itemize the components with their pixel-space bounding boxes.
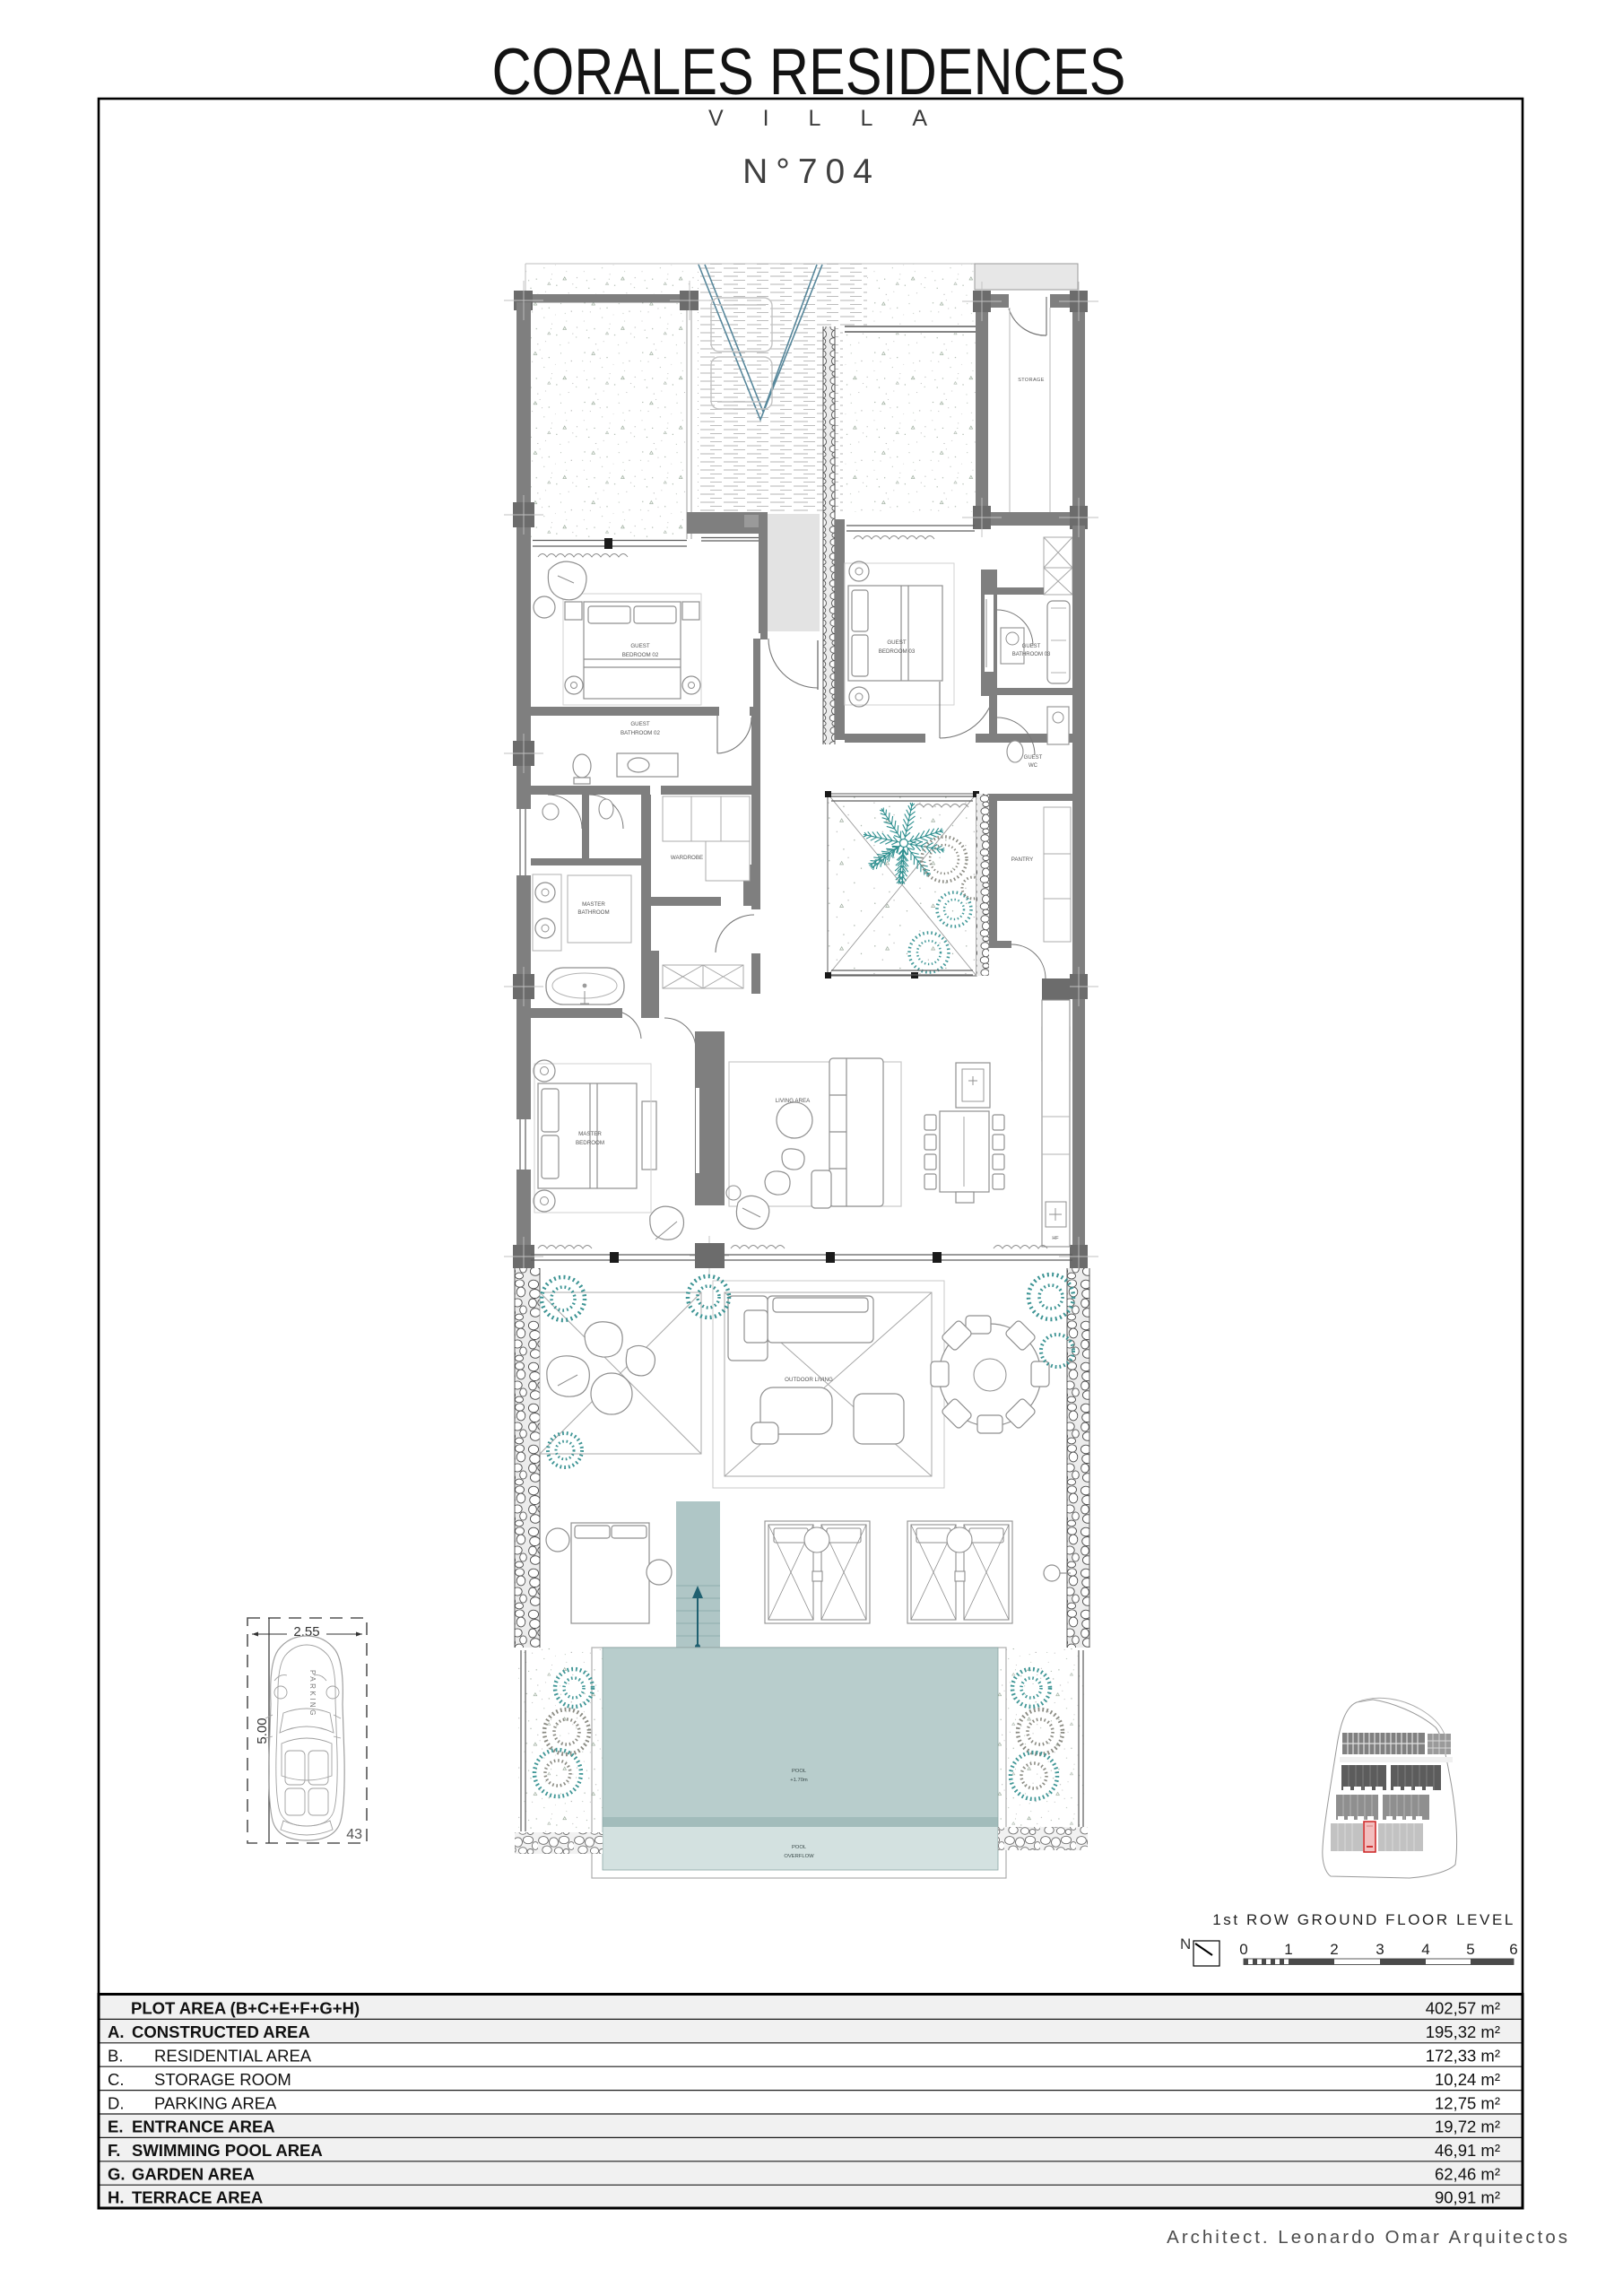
svg-text:1st ROW GROUND FLOOR LEVEL: 1st ROW GROUND FLOOR LEVEL — [1212, 1911, 1515, 1928]
svg-text:GUEST: GUEST — [887, 639, 907, 646]
svg-text:OUTDOOR LIVING: OUTDOOR LIVING — [785, 1377, 833, 1383]
svg-text:+1.70m: +1.70m — [790, 1778, 808, 1783]
svg-text:GUEST: GUEST — [630, 721, 650, 727]
svg-text:C.: C. — [108, 2070, 125, 2089]
svg-text:MASTER: MASTER — [582, 901, 605, 908]
svg-text:A.: A. — [108, 2022, 125, 2041]
svg-text:2: 2 — [1330, 1941, 1338, 1958]
svg-text:10,24 m²: 10,24 m² — [1435, 2070, 1500, 2089]
svg-text:LIVING AREA: LIVING AREA — [776, 1098, 811, 1104]
svg-text:BATHROOM: BATHROOM — [577, 909, 609, 916]
svg-text:1: 1 — [1284, 1941, 1292, 1958]
svg-text:43: 43 — [346, 1827, 362, 1842]
svg-text:STORAGE ROOM: STORAGE ROOM — [154, 2070, 291, 2089]
svg-text:62,46 m²: 62,46 m² — [1435, 2165, 1500, 2184]
svg-text:PARKING: PARKING — [308, 1670, 317, 1718]
svg-text:BATHROOM 03: BATHROOM 03 — [1012, 652, 1051, 657]
svg-text:Architect. Leonardo Omar Arqui: Architect. Leonardo Omar Arquitectos — [1167, 2227, 1570, 2248]
svg-text:GARDEN AREA: GARDEN AREA — [132, 2165, 255, 2184]
svg-text:STORAGE: STORAGE — [1018, 378, 1045, 383]
svg-text:402,57 m²: 402,57 m² — [1426, 1999, 1500, 2018]
svg-text:HF: HF — [1052, 1236, 1059, 1241]
svg-text:4: 4 — [1421, 1941, 1429, 1958]
svg-text:VILLA: VILLA — [708, 106, 967, 131]
svg-text:GUEST: GUEST — [1024, 755, 1043, 761]
svg-text:46,91 m²: 46,91 m² — [1435, 2141, 1500, 2160]
svg-text:5.00: 5.00 — [255, 1718, 270, 1744]
svg-text:0: 0 — [1239, 1941, 1247, 1958]
svg-text:ENTRANCE AREA: ENTRANCE AREA — [132, 2118, 275, 2136]
svg-text:BEDROOM 03: BEDROOM 03 — [879, 648, 916, 655]
svg-text:D.: D. — [108, 2094, 125, 2113]
svg-text:N°704: N°704 — [742, 152, 881, 191]
svg-text:6: 6 — [1509, 1941, 1517, 1958]
svg-text:195,32 m²: 195,32 m² — [1426, 2022, 1500, 2041]
svg-text:N: N — [1180, 1935, 1191, 1952]
svg-text:PARKING AREA: PARKING AREA — [154, 2094, 277, 2113]
svg-text:F.: F. — [108, 2141, 120, 2160]
svg-text:90,91 m²: 90,91 m² — [1435, 2188, 1500, 2207]
svg-text:TERRACE AREA: TERRACE AREA — [132, 2188, 263, 2207]
svg-text:H.: H. — [108, 2188, 125, 2207]
svg-text:POOL: POOL — [792, 1769, 807, 1774]
svg-text:19,72 m²: 19,72 m² — [1435, 2118, 1500, 2136]
svg-text:PLOT AREA (B+C+E+F+G+H): PLOT AREA (B+C+E+F+G+H) — [131, 1999, 360, 2018]
svg-text:WARDROBE: WARDROBE — [671, 855, 703, 861]
svg-text:OVERFLOW: OVERFLOW — [784, 1854, 814, 1859]
svg-text:5: 5 — [1466, 1941, 1474, 1958]
svg-text:RESIDENTIAL AREA: RESIDENTIAL AREA — [154, 2047, 312, 2066]
svg-text:BEDROOM 02: BEDROOM 02 — [622, 652, 659, 658]
svg-text:B.: B. — [108, 2047, 123, 2066]
svg-text:WC: WC — [1028, 763, 1038, 769]
svg-text:G.: G. — [108, 2165, 126, 2184]
svg-text:SWIMMING POOL AREA: SWIMMING POOL AREA — [132, 2141, 323, 2160]
svg-text:E.: E. — [108, 2118, 123, 2136]
svg-text:3: 3 — [1376, 1941, 1384, 1958]
svg-text:12,75 m²: 12,75 m² — [1435, 2094, 1500, 2113]
svg-text:GUEST: GUEST — [1022, 644, 1041, 649]
svg-text:POOL: POOL — [792, 1845, 807, 1850]
svg-text:MASTER: MASTER — [578, 1131, 602, 1137]
svg-text:PANTRY: PANTRY — [1011, 857, 1034, 863]
svg-text:CONSTRUCTED AREA: CONSTRUCTED AREA — [132, 2022, 310, 2041]
svg-text:172,33 m²: 172,33 m² — [1426, 2047, 1500, 2066]
svg-text:BATHROOM 02: BATHROOM 02 — [621, 730, 660, 736]
svg-text:BEDROOM: BEDROOM — [576, 1140, 604, 1146]
svg-text:GUEST: GUEST — [630, 643, 650, 649]
